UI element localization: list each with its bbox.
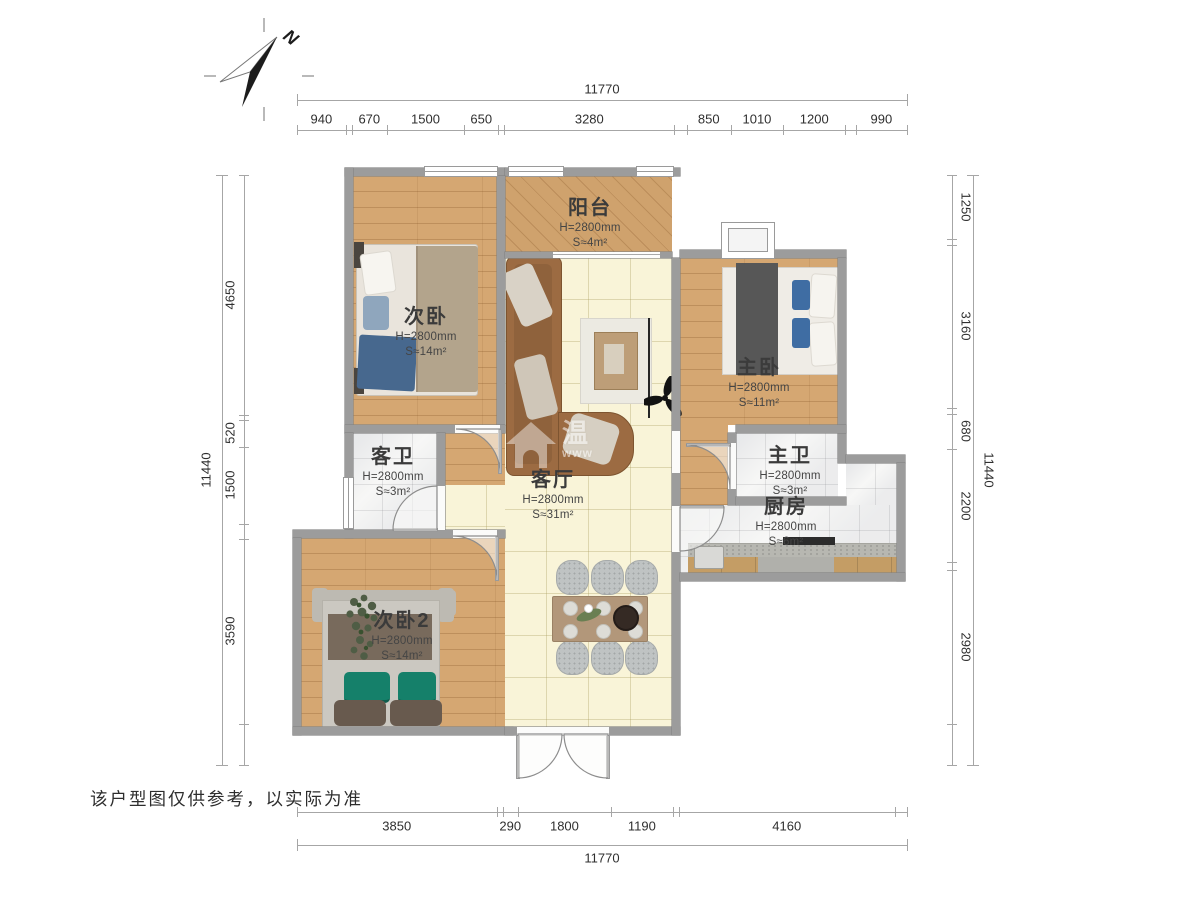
room-height: H=2800mm — [728, 381, 789, 395]
room-area: S≈4m² — [559, 236, 620, 250]
compass-north-label: N — [280, 25, 303, 49]
room-area: S≈6m² — [755, 535, 816, 549]
room-area: S≈14m² — [371, 649, 432, 663]
room-name: 主卧 — [728, 357, 789, 380]
room-height: H=2800mm — [755, 520, 816, 534]
room-label-master-bath: 主卫 H=2800mm S≈3m² — [759, 445, 820, 499]
room-height: H=2800mm — [522, 493, 583, 507]
room-label-bedroom3: 次卧2 H=2800mm S≈14m² — [371, 610, 432, 664]
room-area: S≈14m² — [395, 345, 456, 359]
room-name: 次卧2 — [371, 610, 432, 633]
room-name: 客卫 — [362, 446, 423, 469]
room-label-living-room: 客厅 H=2800mm S≈31m² — [522, 469, 583, 523]
room-name: 阳台 — [559, 197, 620, 220]
door-arc-master-bath — [686, 445, 730, 489]
door-arc-bedroom3 — [453, 536, 497, 580]
door-arc-kitchen — [680, 507, 724, 551]
room-area: S≈31m² — [522, 508, 583, 522]
room-height: H=2800mm — [759, 469, 820, 483]
room-name: 客厅 — [522, 469, 583, 492]
room-label-bedroom2: 次卧 H=2800mm S≈14m² — [395, 306, 456, 360]
room-height: H=2800mm — [395, 330, 456, 344]
door-arc-bedroom2 — [456, 429, 500, 473]
room-name: 主卫 — [759, 445, 820, 468]
room-label-kitchen: 厨房 H=2800mm S≈6m² — [755, 496, 816, 550]
door-arc-entry-left — [518, 734, 562, 778]
floor-plan-canvas: 阳台 H=2800mm S≈4m² 次卧 H=2800mm S≈14m² 主卧 … — [0, 0, 1200, 900]
door-arc-entry-right — [564, 734, 608, 778]
disclaimer-text: 该户型图仅供参考，以实际为准 — [90, 786, 363, 811]
room-label-master-bedroom: 主卧 H=2800mm S≈11m² — [728, 357, 789, 411]
room-name: 厨房 — [755, 496, 816, 519]
room-name: 次卧 — [395, 306, 456, 329]
room-label-balcony: 阳台 H=2800mm S≈4m² — [559, 197, 620, 251]
compass-north-icon: N — [202, 12, 317, 127]
room-height: H=2800mm — [362, 470, 423, 484]
room-label-guest-bath: 客卫 H=2800mm S≈3m² — [362, 446, 423, 500]
door-arcs — [0, 0, 1200, 900]
room-height: H=2800mm — [371, 634, 432, 648]
room-area: S≈3m² — [362, 485, 423, 499]
room-height: H=2800mm — [559, 221, 620, 235]
room-area: S≈11m² — [728, 396, 789, 410]
